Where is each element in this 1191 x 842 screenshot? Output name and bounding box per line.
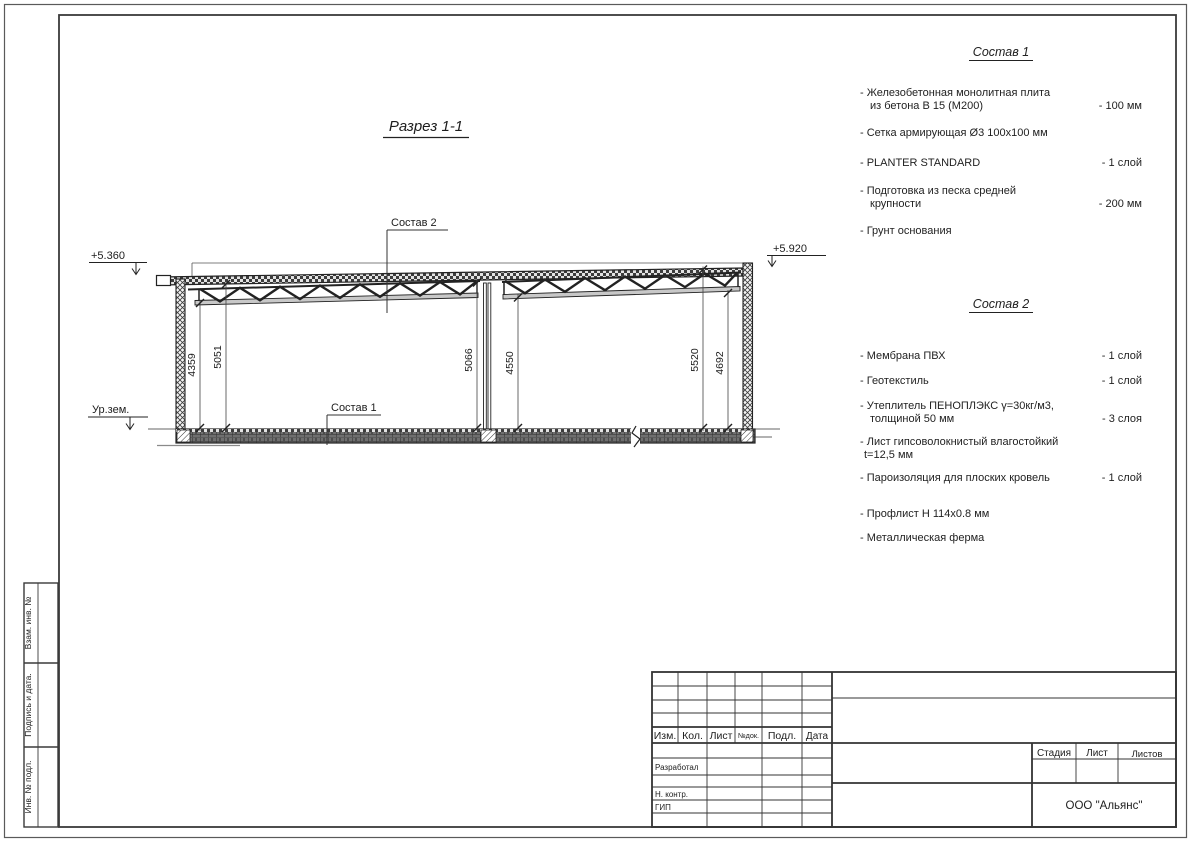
dim-4550: 4550 bbox=[504, 351, 516, 375]
spec2-item: - Профлист Н 114х0.8 мм bbox=[860, 508, 1142, 521]
tb-col-podl: Подл. bbox=[768, 730, 796, 742]
elevation-right-value: +5.920 bbox=[773, 243, 807, 255]
spec-item-text2: из бетона В 15 (М200) bbox=[860, 100, 1050, 113]
spec1-item: - Подготовка из песка среднейкрупности -… bbox=[860, 185, 1142, 211]
wall-right bbox=[743, 263, 753, 430]
tb-role-developed: Разработал bbox=[655, 763, 699, 772]
spec2-item: - Утеплитель ПЕНОПЛЭКС γ=30кг/м3,толщино… bbox=[860, 400, 1142, 426]
sidebar-label-podpis: Подпись и дата. bbox=[23, 673, 33, 737]
spec-item-value: - 3 слоя bbox=[1096, 413, 1142, 426]
spec-item-text: - Профлист Н 114х0.8 мм bbox=[860, 508, 989, 521]
sidebar-label-vzam: Взам. инв. № bbox=[23, 597, 33, 650]
elevation-left: +5.360 bbox=[89, 250, 147, 275]
dim-5520: 5520 bbox=[689, 348, 701, 372]
spec-item-text: - Пароизоляция для плоских кровель bbox=[860, 472, 1050, 485]
elevation-left-value: +5.360 bbox=[91, 250, 125, 262]
title-block: Изм. Кол. Лист №док. Подл. Дата Разработ… bbox=[652, 672, 1176, 827]
spec2-item: - Геотекстиль - 1 слой bbox=[860, 375, 1142, 388]
spec-item-text2: крупности bbox=[860, 198, 1016, 211]
tb-company: ООО "Альянс" bbox=[1066, 800, 1143, 812]
spec2-item: - Металлическая ферма bbox=[860, 532, 1142, 545]
tb-col-data: Дата bbox=[806, 731, 829, 742]
spec-item-text: - Подготовка из песка средней bbox=[860, 185, 1016, 198]
spec2-title: Состав 2 bbox=[860, 298, 1142, 311]
svg-text:Состав 2: Состав 2 bbox=[391, 217, 437, 229]
spec1-item: - Грунт основания bbox=[860, 225, 1142, 238]
ground-level-mark: Ур.зем. bbox=[88, 404, 148, 430]
spec-item-text: - Лист гипсоволокнистый влагостойкий bbox=[860, 436, 1058, 449]
spec-item-text: - Металлическая ферма bbox=[860, 532, 984, 545]
sidebar-stamp: Взам. инв. № Подпись и дата. Инв. № подл… bbox=[23, 583, 58, 827]
spec-item-text: - Железобетонная монолитная плита bbox=[860, 87, 1050, 100]
spec-item-text: - Геотекстиль bbox=[860, 375, 929, 388]
spec-list-sostav-2: Состав 2 - Мембрана ПВХ - 1 слой - Геоте… bbox=[860, 298, 1142, 545]
elevation-right: +5.920 bbox=[767, 243, 826, 267]
spec-item-value: - 1 слой bbox=[1096, 375, 1142, 388]
spec-item-value: - 1 слой bbox=[1096, 157, 1142, 170]
footing-middle bbox=[481, 430, 496, 442]
spec-item-value: - 100 мм bbox=[1093, 100, 1142, 113]
tb-stage-stadia: Стадия bbox=[1037, 748, 1071, 759]
dim-5051: 5051 bbox=[212, 345, 224, 369]
section-title: Разрез 1-1 bbox=[389, 118, 463, 135]
sidebar-label-inv: Инв. № подл. bbox=[23, 761, 33, 814]
tb-role-gip: ГИП bbox=[655, 803, 671, 812]
ground-level-label: Ур.зем. bbox=[92, 404, 129, 416]
spec2-item: - Лист гипсоволокнистый влагостойкийt=12… bbox=[860, 436, 1142, 462]
spec-item-text: - Грунт основания bbox=[860, 225, 952, 238]
spec1-item: - Железобетонная монолитная плитаиз бето… bbox=[860, 87, 1142, 113]
spec-item-value: - 1 слой bbox=[1096, 472, 1142, 485]
wall-left bbox=[176, 279, 185, 430]
dim-4359: 4359 bbox=[186, 353, 198, 377]
spec-item-text: - PLANTER STANDARD bbox=[860, 157, 980, 170]
column-middle bbox=[484, 283, 491, 430]
spec-list-sostav-1: Состав 1 - Железобетонная монолитная пли… bbox=[860, 46, 1142, 238]
spec-item-text: - Сетка армирующая Ø3 100х100 мм bbox=[860, 127, 1048, 140]
spec1-title: Состав 1 bbox=[860, 46, 1142, 59]
spec-item-text: - Утеплитель ПЕНОПЛЭКС γ=30кг/м3, bbox=[860, 400, 1054, 413]
spec-item-value: - 1 слой bbox=[1096, 350, 1142, 363]
spec1-item: - Сетка армирующая Ø3 100х100 мм bbox=[860, 127, 1142, 140]
dim-5066: 5066 bbox=[463, 348, 475, 372]
spec-item-text2: t=12,5 мм bbox=[860, 449, 1058, 462]
spec-item-text2: толщиной 50 мм bbox=[860, 413, 1054, 426]
spec-item-text: - Мембрана ПВХ bbox=[860, 350, 945, 363]
svg-text:Состав 1: Состав 1 bbox=[331, 402, 377, 414]
tb-stage-listov: Листов bbox=[1132, 749, 1163, 760]
tb-stage-list: Лист bbox=[1086, 748, 1108, 759]
floor-slab bbox=[148, 426, 780, 447]
spec-item-value: - 200 мм bbox=[1093, 198, 1142, 211]
dim-4692: 4692 bbox=[714, 351, 726, 375]
drawing-sheet: Взам. инв. № Подпись и дата. Инв. № подл… bbox=[0, 0, 1191, 842]
footing-right bbox=[741, 430, 753, 442]
spec2-item: - Мембрана ПВХ - 1 слой bbox=[860, 350, 1142, 363]
truss-left bbox=[188, 281, 480, 305]
tb-col-kol: Кол. bbox=[682, 730, 703, 742]
roof-end-cap bbox=[157, 276, 171, 286]
tb-role-ncontr: Н. контр. bbox=[655, 790, 688, 799]
tb-col-ndok: №док. bbox=[738, 731, 759, 740]
tb-col-izm: Изм. bbox=[654, 730, 677, 742]
tb-col-list: Лист bbox=[710, 730, 733, 742]
spec2-item: - Пароизоляция для плоских кровель - 1 с… bbox=[860, 472, 1142, 485]
section-drawing: Разрез 1-1 bbox=[88, 118, 826, 447]
footing-left bbox=[177, 430, 190, 442]
dimension-values: 4359 5051 5066 4550 5520 4692 bbox=[186, 345, 726, 377]
spec1-item: - PLANTER STANDARD - 1 слой bbox=[860, 157, 1142, 170]
break-symbol bbox=[631, 426, 640, 447]
